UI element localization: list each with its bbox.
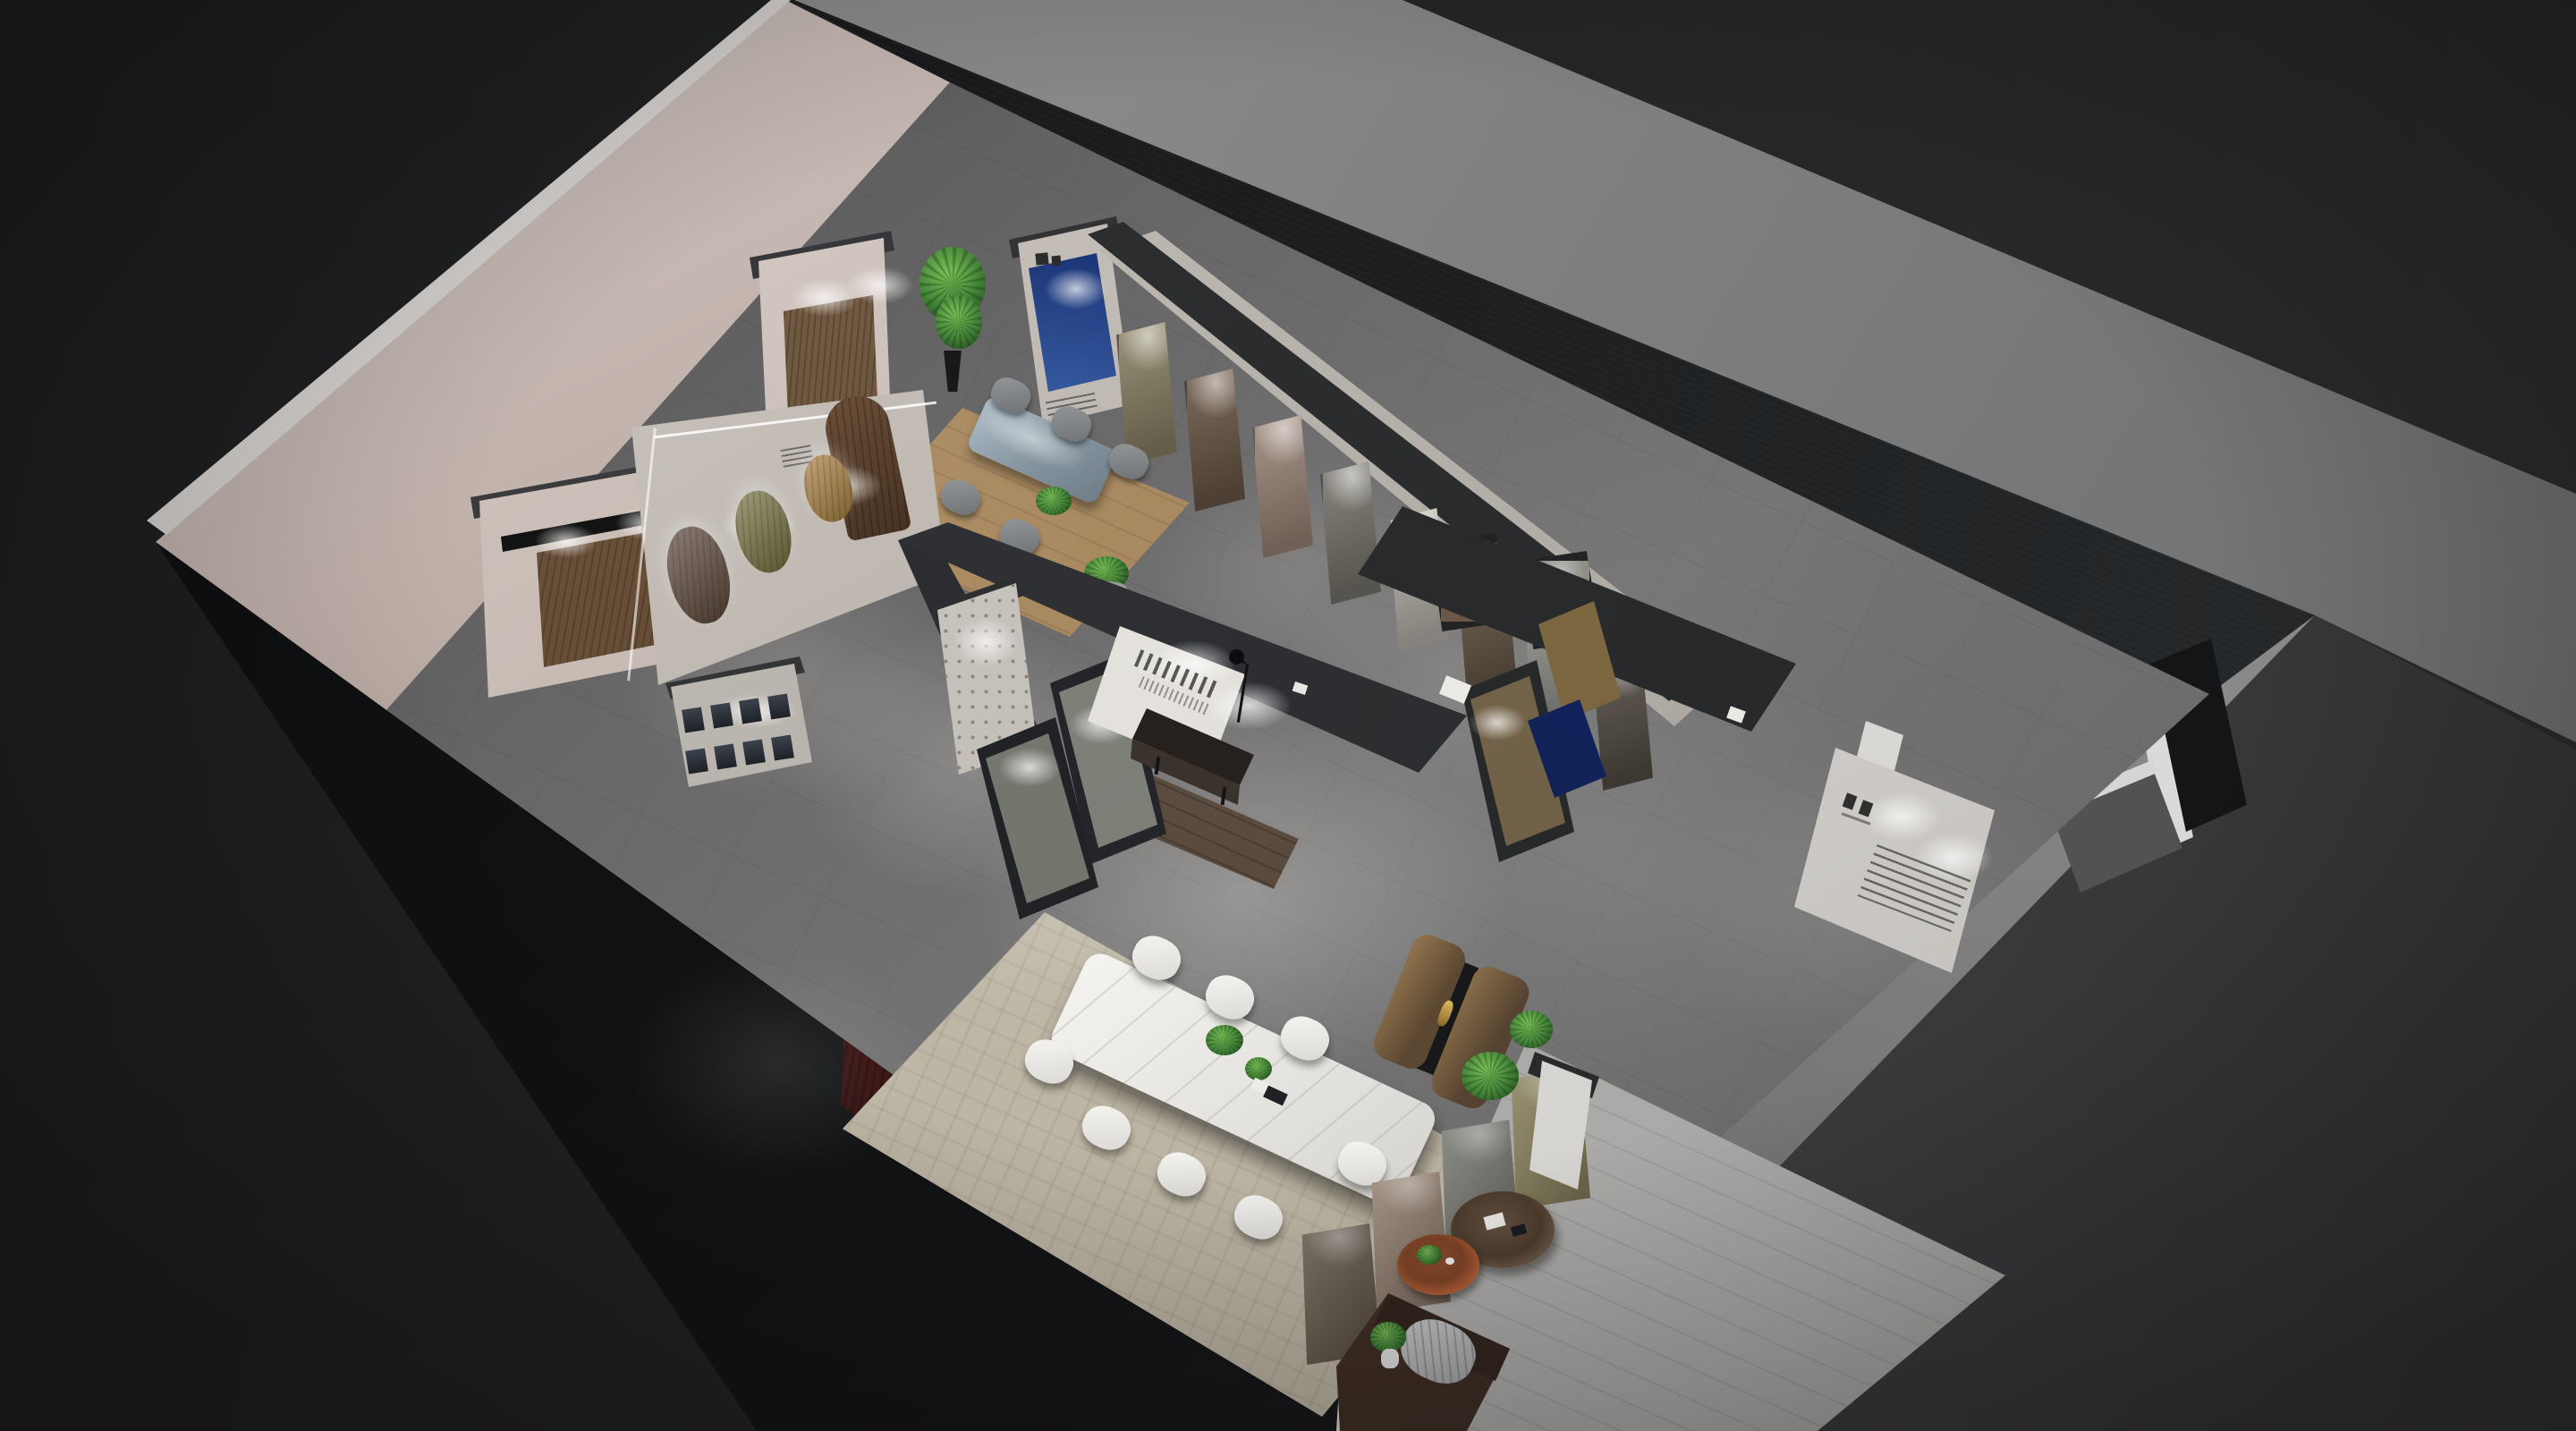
vignette-overlay [0,0,2576,1431]
showroom-render [0,0,2576,1431]
